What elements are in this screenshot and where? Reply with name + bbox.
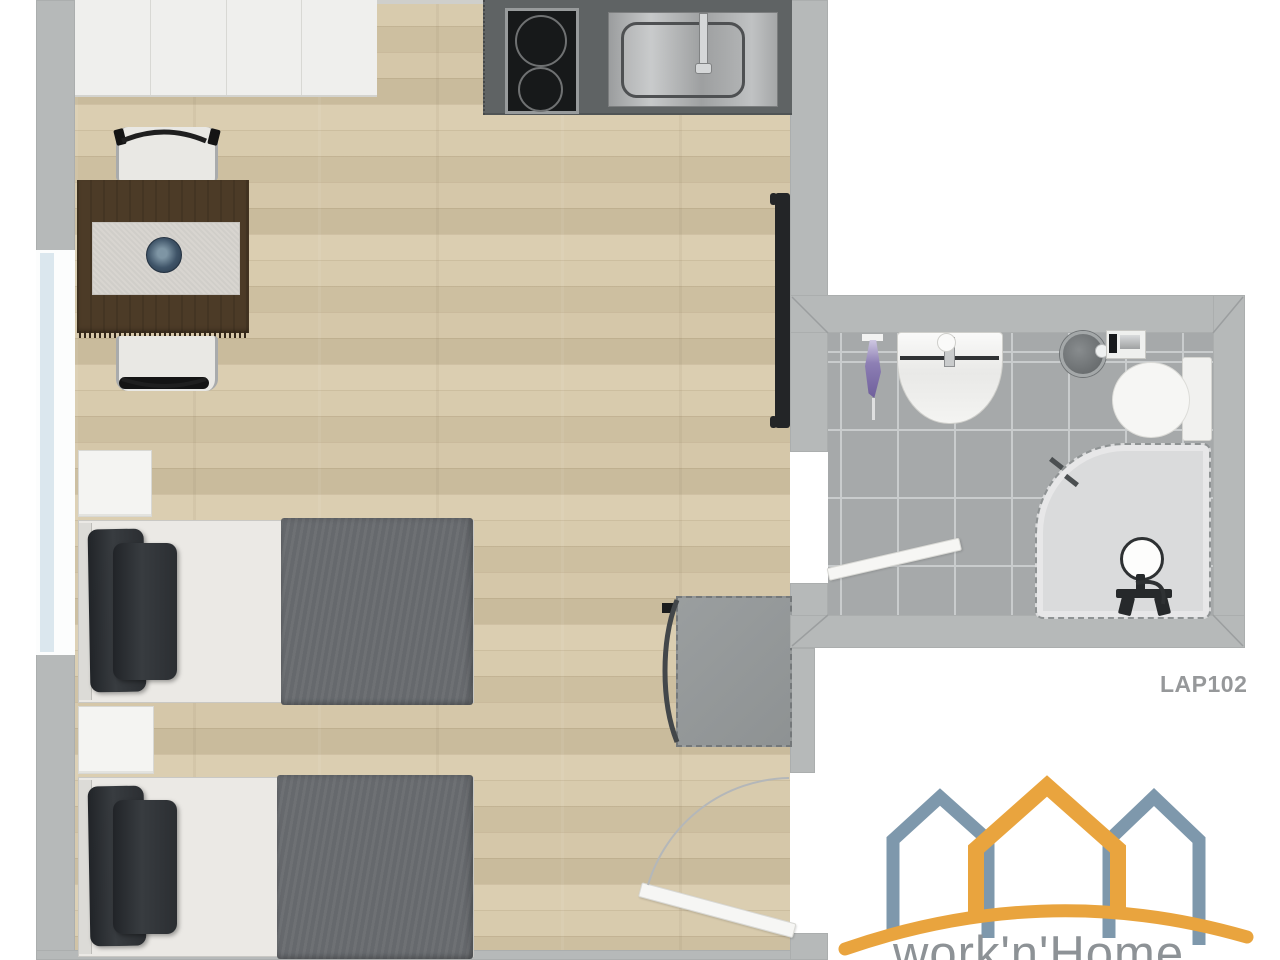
unit-label: LAP102 — [1160, 671, 1247, 698]
logo-house-center — [976, 786, 1118, 916]
entry-door-swing-arc — [648, 778, 789, 885]
stool-armrest-arc — [1136, 582, 1164, 604]
chair-bottom-back-arc — [122, 379, 206, 386]
armchair-back-arc — [665, 600, 677, 742]
brand-logo-text: work'n'Home — [893, 926, 1184, 960]
floorplan-canvas: LAP102 work'n'Home — [0, 0, 1280, 960]
bathroom-wall-miters — [792, 297, 1243, 646]
chair-top-back-arc — [122, 132, 206, 141]
